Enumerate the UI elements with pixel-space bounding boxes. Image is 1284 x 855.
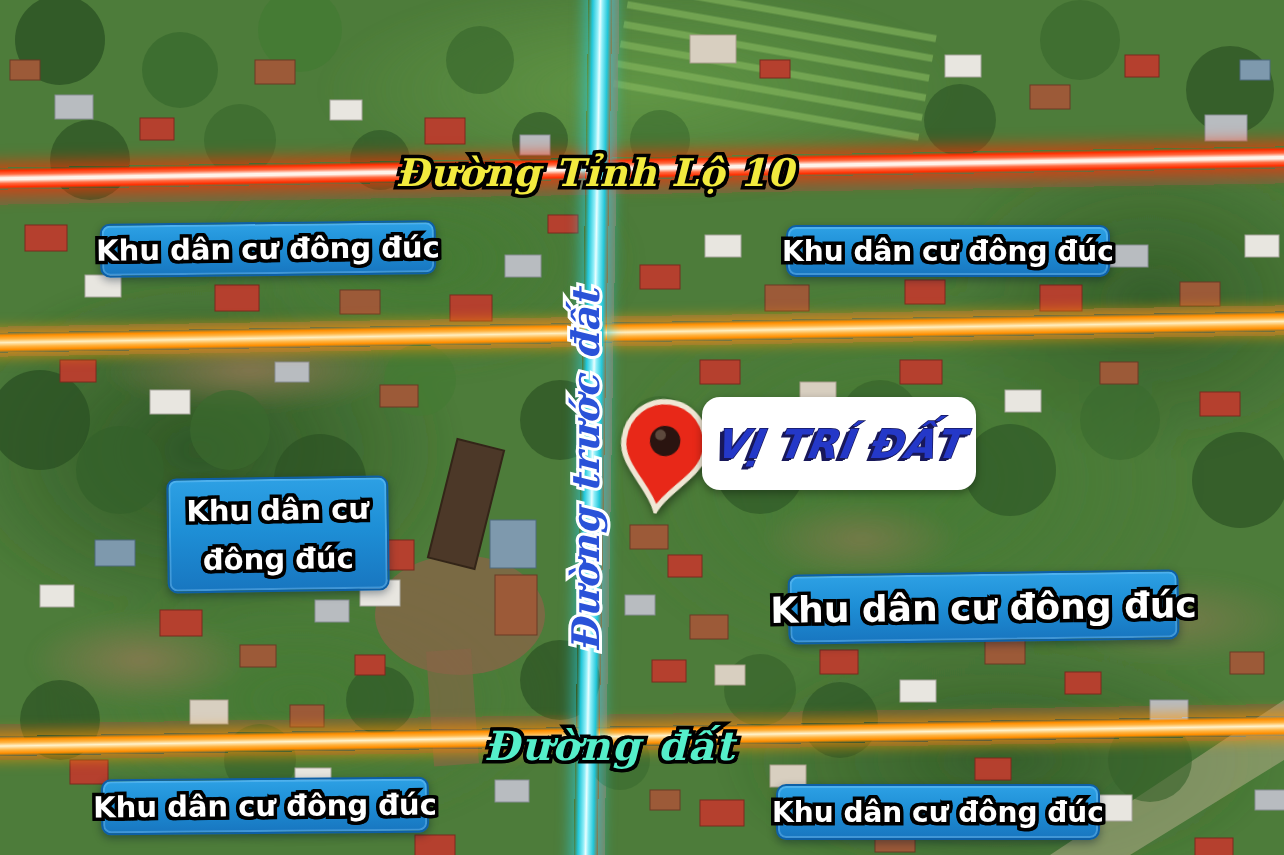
residential-badge-label: Khu dân cư đông đúc [782, 235, 1114, 268]
residential-badge-top-left: Khu dân cư đông đúc [100, 220, 437, 278]
residential-badge-mid-left: Khu dân cư đông đúc [166, 475, 390, 593]
residential-badge-label: Khu dân cư đông đúc [770, 584, 1197, 631]
dirt-road-name-label: Đường đất [465, 722, 755, 769]
residential-badge-bottom-right: Khu dân cư đông đúc [776, 784, 1100, 840]
highway-name-label: Đường Tỉnh Lộ 10 [370, 150, 820, 195]
residential-badge-label-line1: Khu dân cư [186, 492, 369, 529]
residential-badge-mid-right: Khu dân cư đông đúc [788, 569, 1180, 644]
residential-badge-label: Khu dân cư đông đúc [772, 796, 1104, 829]
residential-badge-bottom-left: Khu dân cư đông đúc [101, 777, 429, 836]
residential-badge-label: Khu dân cư đông đúc [93, 788, 437, 825]
residential-badge-top-right: Khu dân cư đông đúc [786, 225, 1110, 277]
residential-badge-label-line2: đông đúc [203, 541, 354, 577]
residential-badge-label: Khu dân cư đông đúc [96, 230, 440, 268]
aerial-photo: Đường Tỉnh Lộ 10 Đường đất Đường trước đ… [0, 0, 1284, 855]
plot-location-callout: VỊ TRÍ ĐẤT [702, 397, 976, 490]
plot-location-label: VỊ TRÍ ĐẤT [712, 421, 967, 467]
front-road-name-label: Đường trước đất [563, 288, 608, 652]
